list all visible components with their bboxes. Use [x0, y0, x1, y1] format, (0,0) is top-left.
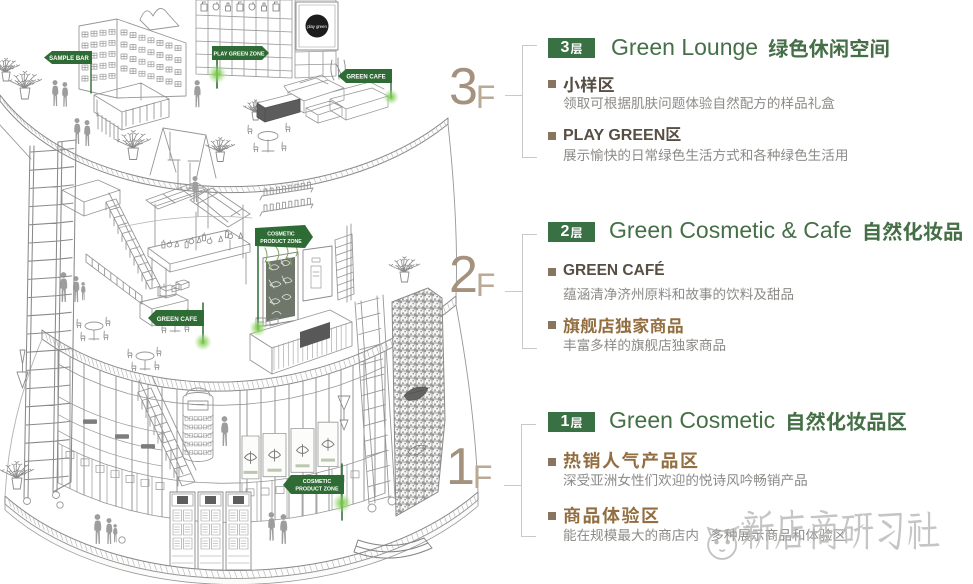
svg-text:SAMPLE BAR: SAMPLE BAR	[49, 56, 89, 62]
svg-text:PRODUCT ZONE: PRODUCT ZONE	[260, 239, 302, 245]
svg-text:PLAY GREEN ZONE: PLAY GREEN ZONE	[214, 52, 265, 58]
svg-text:COSMETIC: COSMETIC	[303, 479, 332, 485]
svg-text:PRODUCT ZONE: PRODUCT ZONE	[295, 487, 339, 493]
svg-text:GREEN CAFE: GREEN CAFE	[157, 316, 198, 323]
svg-text:GREEN CAFE: GREEN CAFE	[346, 75, 385, 81]
svg-text:COSMETIC: COSMETIC	[267, 232, 295, 238]
svg-text:play green: play green	[307, 24, 327, 29]
